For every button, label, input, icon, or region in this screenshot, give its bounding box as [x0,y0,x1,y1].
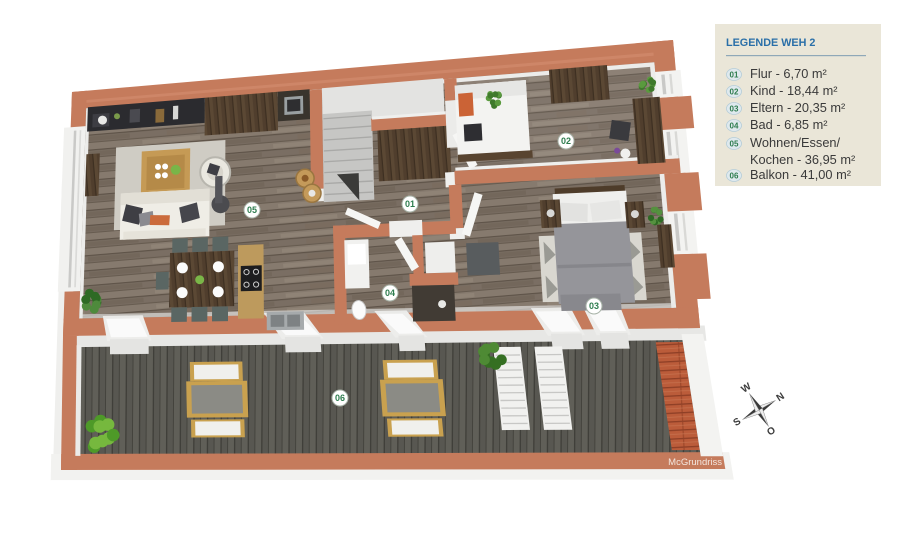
svg-text:02: 02 [561,136,571,146]
svg-text:06: 06 [730,171,739,180]
svg-text:03: 03 [730,104,739,113]
svg-text:05: 05 [730,139,739,148]
svg-text:Bad - 6,85 m²: Bad - 6,85 m² [750,117,828,132]
svg-text:Flur - 6,70 m²: Flur - 6,70 m² [750,66,828,81]
svg-text:McGrundriss: McGrundriss [668,457,722,468]
svg-text:04: 04 [730,121,739,130]
svg-text:04: 04 [385,288,395,298]
svg-text:Eltern - 20,35 m²: Eltern - 20,35 m² [750,100,846,115]
svg-text:01: 01 [405,199,415,209]
svg-text:02: 02 [730,87,739,96]
svg-text:01: 01 [730,70,739,79]
svg-text:Balkon - 41,00 m²: Balkon - 41,00 m² [750,167,852,182]
svg-text:Kochen - 36,95 m²: Kochen - 36,95 m² [750,152,856,167]
svg-text:Wohnen/Essen/: Wohnen/Essen/ [750,135,841,150]
svg-text:LEGENDE WEH 2: LEGENDE WEH 2 [726,37,815,49]
svg-text:Kind - 18,44 m²: Kind - 18,44 m² [750,83,838,98]
svg-text:06: 06 [335,393,345,403]
svg-text:03: 03 [589,301,599,311]
svg-text:05: 05 [247,205,257,215]
